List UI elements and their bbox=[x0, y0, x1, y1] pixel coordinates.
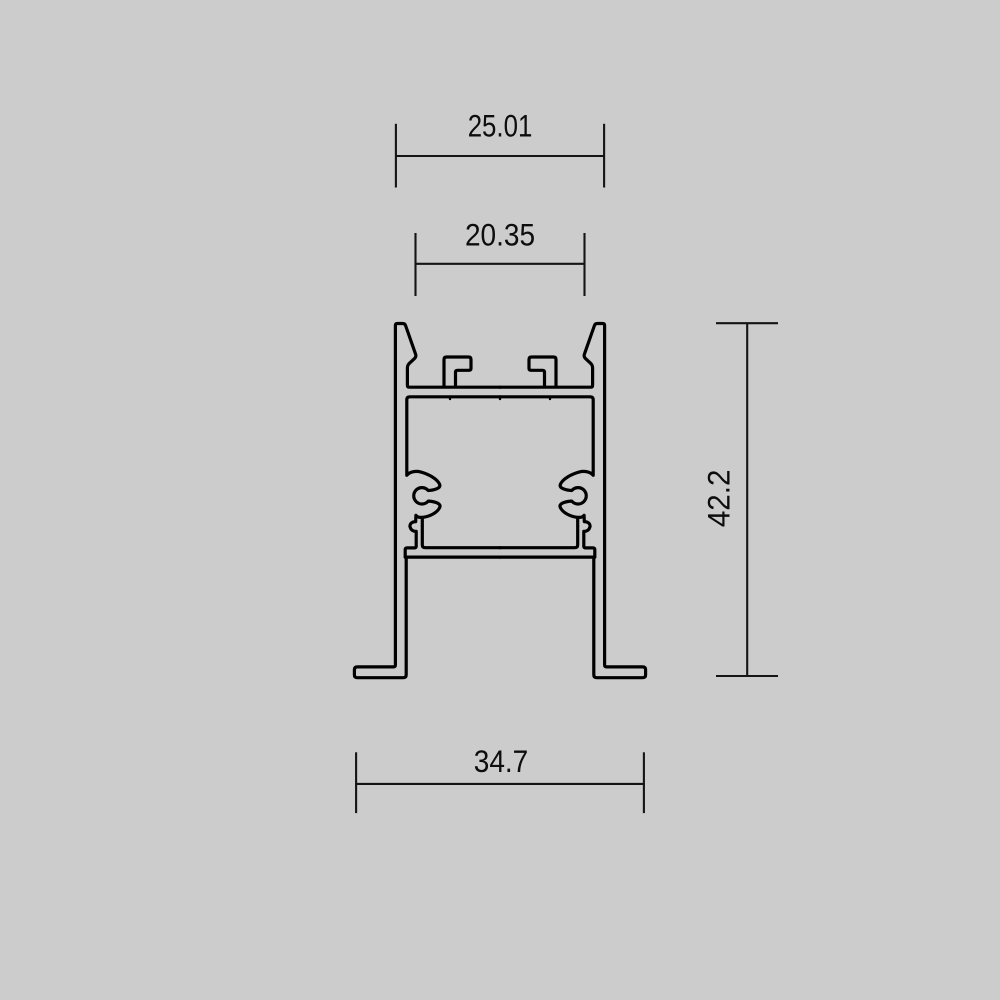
svg-text:20.35: 20.35 bbox=[465, 218, 535, 253]
svg-text:34.7: 34.7 bbox=[474, 745, 529, 780]
svg-text:25.01: 25.01 bbox=[468, 109, 533, 144]
svg-text:42.2: 42.2 bbox=[701, 470, 736, 528]
